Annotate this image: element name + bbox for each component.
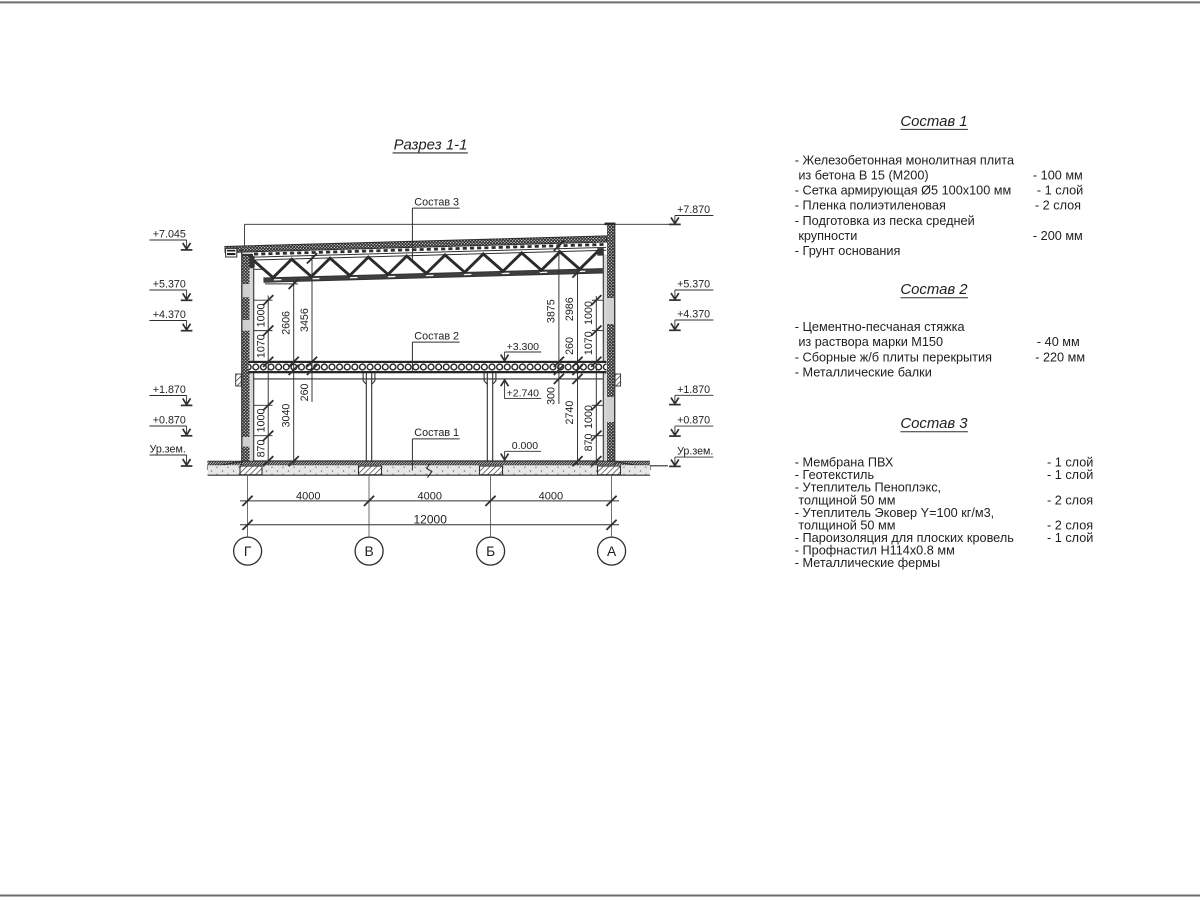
- svg-text:+2.740: +2.740: [507, 387, 540, 399]
- svg-text:1070: 1070: [583, 331, 595, 355]
- svg-text:- Цементно-песчаная стяжка: - Цементно-песчаная стяжка: [795, 320, 966, 334]
- svg-text:- Железобетонная монолитная п: - Железобетонная монолитная плита: [795, 153, 1015, 167]
- svg-text:3456: 3456: [299, 308, 311, 332]
- svg-text:4000: 4000: [539, 491, 563, 503]
- svg-text:из бетона В 15 (М200): из бетона В 15 (М200): [795, 169, 929, 183]
- svg-text:+7.870: +7.870: [677, 204, 710, 216]
- svg-text:- 1 слой: - 1 слой: [1047, 468, 1093, 482]
- svg-text:2986: 2986: [564, 297, 576, 321]
- svg-text:12000: 12000: [414, 513, 448, 527]
- svg-text:1000: 1000: [255, 409, 267, 433]
- svg-text:Состав 1: Состав 1: [900, 114, 967, 130]
- svg-text:из раствора марки М150: из раствора марки М150: [795, 335, 943, 349]
- svg-text:- Металлические фермы: - Металлические фермы: [795, 556, 940, 570]
- svg-text:- 2 слоя: - 2 слоя: [1047, 493, 1093, 507]
- svg-text:- 2 слоя: - 2 слоя: [1035, 199, 1081, 213]
- svg-text:+7.045: +7.045: [153, 229, 186, 241]
- svg-text:- 200 мм: - 200 мм: [1033, 229, 1083, 243]
- svg-text:+5.370: +5.370: [677, 279, 710, 291]
- svg-text:- Грунт основания: - Грунт основания: [795, 244, 901, 258]
- svg-text:- 220 мм: - 220 мм: [1035, 350, 1085, 364]
- svg-text:+4.370: +4.370: [677, 309, 710, 321]
- svg-text:В: В: [364, 544, 373, 559]
- svg-text:+0.870: +0.870: [677, 415, 710, 427]
- svg-text:+5.370: +5.370: [153, 279, 186, 291]
- svg-text:1000: 1000: [255, 303, 267, 327]
- svg-text:+1.870: +1.870: [677, 384, 710, 396]
- svg-text:- Пленка полиэтиленовая: - Пленка полиэтиленовая: [795, 199, 946, 213]
- svg-text:- Сборные ж/б плиты перекрытия: - Сборные ж/б плиты перекрытия: [795, 350, 992, 364]
- svg-text:+0.870: +0.870: [153, 415, 186, 427]
- svg-text:- 40 мм: - 40 мм: [1037, 335, 1080, 349]
- svg-text:Состав 3: Состав 3: [900, 416, 968, 432]
- svg-text:- Металлические балки: - Металлические балки: [795, 365, 932, 379]
- svg-text:3875: 3875: [546, 299, 558, 323]
- svg-text:Г: Г: [244, 544, 252, 559]
- svg-text:870: 870: [583, 434, 595, 452]
- svg-text:260: 260: [299, 383, 311, 401]
- svg-text:2606: 2606: [281, 311, 293, 335]
- svg-text:+4.370: +4.370: [153, 309, 186, 321]
- svg-text:Ур.зем.: Ур.зем.: [677, 446, 713, 458]
- svg-text:Состав 2: Состав 2: [900, 282, 968, 298]
- svg-text:- 100 мм: - 100 мм: [1033, 169, 1083, 183]
- svg-text:3040: 3040: [281, 404, 293, 428]
- svg-text:+3.300: +3.300: [507, 341, 540, 353]
- svg-text:2740: 2740: [564, 401, 576, 425]
- svg-text:0.000: 0.000: [512, 440, 538, 452]
- svg-text:крупности: крупности: [795, 229, 858, 243]
- svg-text:- 1 слой: - 1 слой: [1037, 184, 1083, 198]
- svg-text:- 1 слой: - 1 слой: [1047, 531, 1093, 545]
- svg-text:Ур.зем.: Ур.зем.: [150, 444, 186, 456]
- svg-text:260: 260: [564, 337, 576, 355]
- svg-text:4000: 4000: [418, 491, 442, 503]
- svg-text:Состав 2: Состав 2: [414, 330, 459, 342]
- svg-text:Б: Б: [486, 544, 495, 559]
- svg-text:1000: 1000: [583, 405, 595, 429]
- svg-text:А: А: [607, 544, 617, 559]
- svg-text:- Сетка армирующая Ø5 100x100: - Сетка армирующая Ø5 100x100 мм: [795, 184, 1011, 198]
- svg-text:Разрез 1-1: Разрез 1-1: [394, 138, 468, 154]
- svg-text:4000: 4000: [296, 491, 320, 503]
- svg-text:+1.870: +1.870: [153, 384, 186, 396]
- svg-text:1000: 1000: [583, 301, 595, 325]
- svg-text:Состав 1: Состав 1: [414, 427, 459, 439]
- svg-text:- Подготовка из песка средней: - Подготовка из песка средней: [795, 214, 975, 228]
- svg-text:870: 870: [255, 440, 267, 458]
- svg-text:1070: 1070: [255, 334, 267, 358]
- svg-text:Состав 3: Состав 3: [414, 196, 459, 208]
- svg-text:300: 300: [546, 387, 558, 405]
